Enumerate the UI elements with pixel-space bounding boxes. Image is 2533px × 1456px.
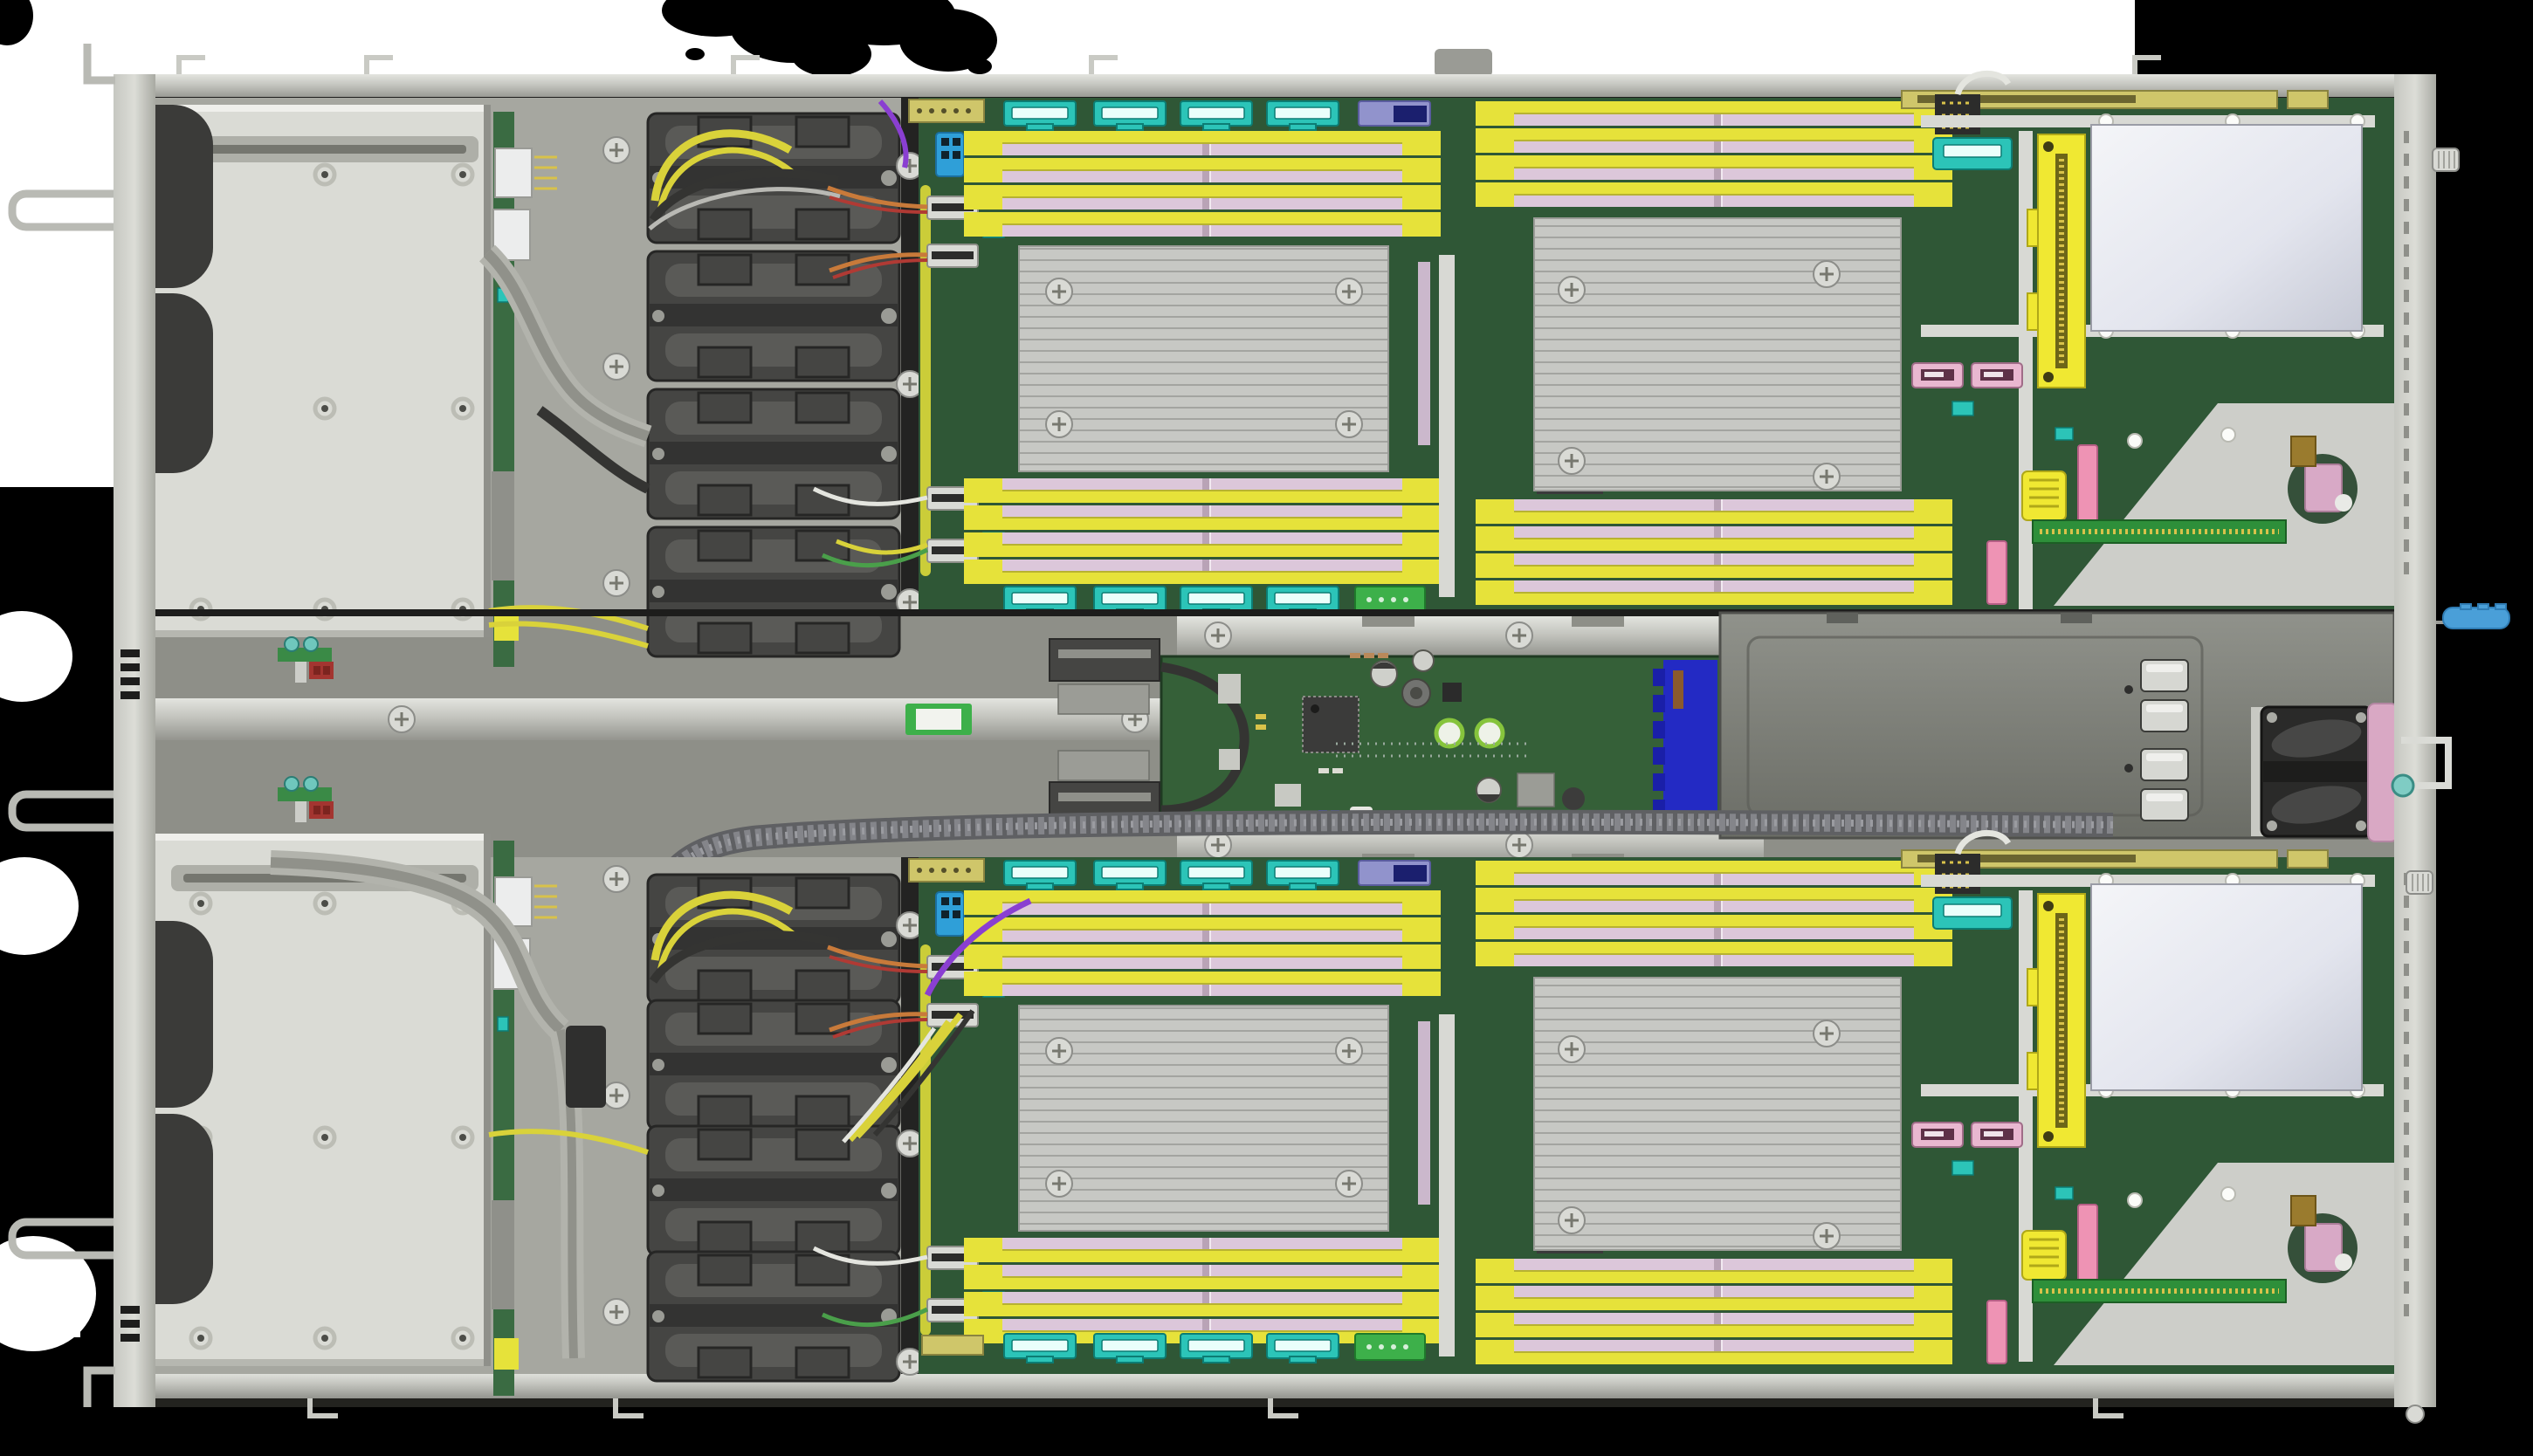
node-a-fan-bank	[648, 98, 923, 656]
node-b-io-row-top	[1004, 861, 1430, 889]
asic-chip	[1303, 697, 1359, 752]
status-led	[1436, 720, 1463, 746]
power-midplane-connector	[1663, 660, 1717, 822]
psu-handle-bezel	[2368, 704, 2398, 841]
green-connector	[1355, 587, 1425, 613]
left-wall	[114, 74, 155, 1407]
psu-pull-tab	[2443, 608, 2509, 628]
node-b	[155, 777, 2394, 1396]
node-a-io-row-top	[1004, 101, 1430, 130]
bottom-rail	[114, 1372, 2436, 1398]
mezz-rail-top	[1177, 616, 1764, 656]
psu	[1720, 604, 2509, 841]
thumbscrew-bottom	[2406, 871, 2433, 894]
psu-fan	[2261, 707, 2371, 836]
thumbscrew-top	[2433, 148, 2459, 171]
chassis-render	[0, 0, 2533, 1456]
left-divider-rail	[155, 698, 1177, 740]
green-connector	[1355, 1334, 1425, 1360]
server-chassis-photo	[0, 0, 2533, 1456]
status-led	[1476, 720, 1503, 746]
cable-connector	[566, 1026, 606, 1108]
